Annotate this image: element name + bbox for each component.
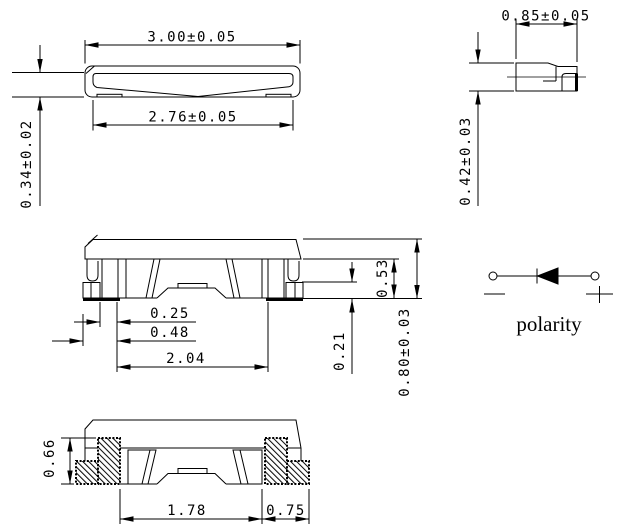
dim-label-base-height: 0.53 [375, 258, 391, 298]
plus-symbol [586, 286, 613, 303]
metal-lead-foot-left [76, 461, 98, 484]
cavity-plate [178, 469, 207, 474]
terminal-circle-anode [591, 272, 599, 280]
bottom-cavity [157, 474, 226, 485]
lead-tab-right [266, 94, 291, 97]
dim-front-lens-width: 2.76±0.05 [93, 100, 293, 131]
polarity-symbol: polarity [484, 268, 613, 336]
dim-lead-foot-length: 0.48 [52, 325, 196, 341]
dim-label-pad-width: 0.75 [266, 503, 306, 519]
dim-label-lead-foot-length: 0.48 [150, 325, 190, 341]
dim-label-overall-depth: 0.85±0.05 [501, 9, 590, 25]
lead-bend-left [87, 259, 98, 281]
pin1-chamfer-mark [86, 66, 95, 74]
dim-pad-span: 1.78 [120, 489, 262, 524]
cavity-plate [178, 284, 207, 289]
polarity-label: polarity [516, 312, 582, 336]
dim-label-overall-width: 3.00±0.05 [147, 30, 236, 46]
dim-total-height: 0.80±0.03 [303, 239, 422, 397]
front-view: 3.00±0.05 2.76±0.05 0.34±0.02 [12, 30, 300, 209]
mechanical-drawing-canvas: 3.00±0.05 2.76±0.05 0.34±0.02 0.85±0.05 [0, 0, 625, 529]
lens-outline [93, 74, 293, 97]
dim-side-overall-height: 0.42±0.03 [458, 32, 514, 206]
dim-label-lead-thickness: 0.25 [150, 306, 190, 322]
bottom-section-view: 0.66 1.78 0.75 [42, 420, 309, 524]
metal-lead-foot-right [287, 461, 309, 484]
side-view: 0.85±0.05 0.42±0.03 [458, 9, 591, 207]
dim-label-total-height: 0.80±0.03 [397, 307, 413, 396]
package-outline [85, 66, 300, 97]
metal-lead-block-right [265, 438, 287, 484]
led-package-dimension-drawing: 3.00±0.05 2.76±0.05 0.34±0.02 0.85±0.05 [0, 0, 625, 529]
dim-label-overall-height: 0.42±0.03 [458, 116, 474, 205]
dim-inner-lead-span: 2.04 [117, 351, 268, 367]
dim-front-overall-width: 3.00±0.05 [85, 30, 300, 64]
dim-label-profile-height: 0.34±0.02 [19, 119, 35, 208]
dim-lead-thickness: 0.25 [74, 306, 196, 322]
dim-standoff: 0.21 [302, 262, 357, 374]
diode-triangle-icon [538, 268, 559, 284]
body-hatch-right [233, 450, 262, 484]
body-hatch-left [128, 450, 156, 484]
dim-front-profile-height: 0.34±0.02 [12, 45, 84, 209]
dim-label-lens-width: 2.76±0.05 [148, 110, 237, 126]
dim-base-height: 0.53 [303, 258, 399, 298]
dim-side-overall-depth: 0.85±0.05 [501, 9, 590, 63]
body-hatch-right [232, 259, 262, 298]
lens-slab-outline [85, 240, 301, 260]
emitting-window-step [562, 74, 577, 92]
lead-tab-left [97, 94, 122, 97]
section-view: 0.25 0.48 2.04 0.21 0.53 0.80±0.03 [52, 235, 422, 397]
dim-label-lead-height: 0.66 [42, 438, 58, 478]
dim-label-standoff: 0.21 [332, 331, 348, 371]
bottom-cavity [157, 288, 226, 298]
cavity-wall-right [240, 450, 248, 484]
dim-label-inner-lead-span: 2.04 [166, 351, 206, 367]
lead-bend-right [288, 259, 299, 281]
terminal-circle-cathode [489, 272, 497, 280]
metal-lead-block-left [98, 438, 120, 484]
dim-pad-width: 0.75 [262, 489, 309, 524]
body-hatch-left [126, 259, 154, 298]
dim-label-pad-span: 1.78 [167, 503, 207, 519]
